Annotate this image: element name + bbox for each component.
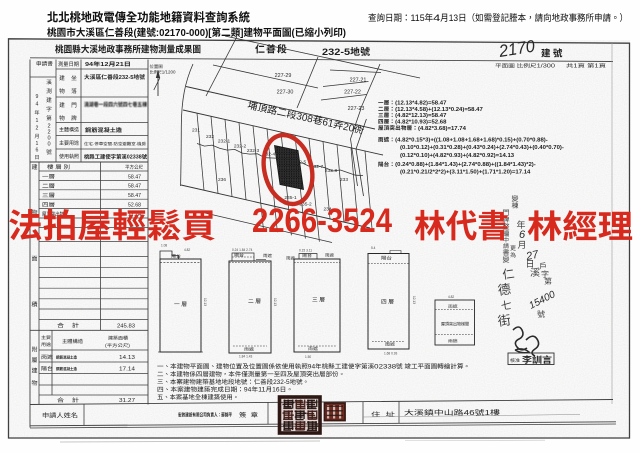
svg-text:(: ( bbox=[134, 28, 138, 39]
svg-text:4: 4 bbox=[433, 13, 440, 23]
svg-text::02170-000)[: :02170-000)[ bbox=[156, 28, 212, 39]
svg-text:13: 13 bbox=[449, 13, 458, 23]
svg-text:115: 115 bbox=[411, 13, 425, 23]
svg-text:]: ] bbox=[240, 28, 243, 39]
svg-text:): ) bbox=[343, 28, 346, 39]
svg-text:(: ( bbox=[292, 28, 296, 39]
